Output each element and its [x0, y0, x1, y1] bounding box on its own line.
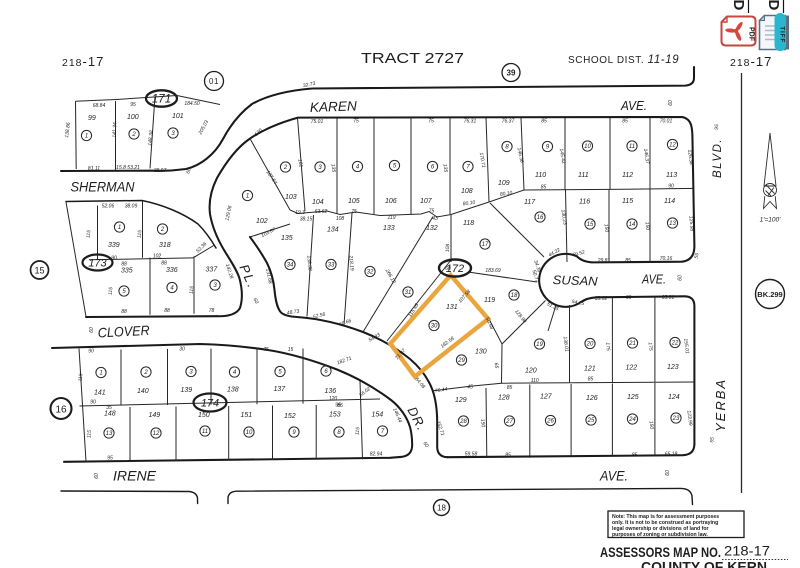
- svg-text:134: 134: [327, 227, 339, 234]
- svg-text:19.3: 19.3: [295, 210, 305, 216]
- svg-text:AVE.: AVE.: [620, 98, 647, 113]
- svg-text:102: 102: [256, 218, 268, 225]
- svg-text:111: 111: [578, 172, 589, 179]
- svg-text:30: 30: [431, 324, 438, 330]
- svg-text:COUNTY OF KERN: COUNTY OF KERN: [641, 559, 767, 568]
- svg-text:108: 108: [336, 216, 345, 222]
- svg-text:107: 107: [420, 198, 433, 205]
- svg-text:1: 1: [85, 134, 88, 140]
- svg-text:TRACT 2727: TRACT 2727: [361, 51, 464, 67]
- svg-text:1: 1: [118, 225, 121, 231]
- svg-text:43: 43: [432, 216, 438, 222]
- svg-text:75: 75: [263, 347, 269, 353]
- svg-text:117: 117: [524, 199, 536, 206]
- svg-text:32: 32: [367, 270, 374, 276]
- svg-text:171: 171: [152, 94, 171, 106]
- svg-text:115: 115: [108, 287, 115, 296]
- svg-text:70.16: 70.16: [660, 256, 673, 262]
- svg-text:30: 30: [179, 347, 185, 353]
- svg-text:123: 123: [667, 364, 679, 371]
- svg-text:115: 115: [622, 198, 633, 205]
- svg-text:2: 2: [143, 370, 148, 376]
- svg-text:68.84: 68.84: [93, 103, 106, 109]
- svg-text:85: 85: [541, 119, 547, 125]
- svg-text:70.01: 70.01: [660, 119, 673, 125]
- svg-text:34: 34: [287, 263, 294, 269]
- svg-text:39: 39: [507, 69, 516, 78]
- svg-text:135: 135: [281, 235, 293, 242]
- svg-text:115: 115: [137, 230, 144, 239]
- svg-text:75: 75: [429, 209, 435, 215]
- svg-text:115: 115: [86, 430, 93, 439]
- svg-text:25: 25: [587, 418, 595, 424]
- svg-text:129: 129: [455, 397, 467, 404]
- svg-text:52.06: 52.06: [102, 204, 115, 210]
- svg-text:114: 114: [664, 198, 675, 205]
- svg-text:151: 151: [241, 412, 253, 419]
- svg-text:100: 100: [127, 114, 139, 121]
- svg-text:115: 115: [355, 427, 362, 436]
- svg-text:20: 20: [586, 342, 594, 348]
- svg-text:SCHOOL DIST. 11-19: SCHOOL DIST. 11-19: [568, 54, 679, 66]
- svg-text:55: 55: [709, 437, 715, 443]
- svg-text:38.97: 38.97: [154, 168, 167, 174]
- svg-text:14: 14: [629, 222, 636, 228]
- svg-text:2: 2: [131, 132, 136, 138]
- svg-text:125: 125: [627, 394, 639, 401]
- svg-text:99: 99: [88, 115, 96, 122]
- svg-text:112: 112: [622, 172, 633, 179]
- svg-text:17: 17: [482, 242, 489, 248]
- svg-text:126: 126: [586, 395, 598, 402]
- svg-text:11: 11: [202, 429, 208, 435]
- svg-text:150: 150: [479, 419, 486, 428]
- svg-text:63.62: 63.62: [315, 209, 328, 215]
- svg-text:60: 60: [445, 266, 451, 272]
- svg-text:173: 173: [88, 258, 107, 270]
- svg-text:KAREN: KAREN: [310, 98, 358, 115]
- svg-text:101: 101: [172, 113, 184, 120]
- svg-text:75: 75: [351, 209, 357, 215]
- svg-text:88: 88: [121, 262, 127, 268]
- svg-text:10: 10: [246, 430, 253, 436]
- svg-text:TIFF: TIFF: [778, 26, 785, 43]
- svg-text:28: 28: [459, 419, 467, 425]
- svg-text:D: D: [765, 0, 782, 11]
- svg-text:85: 85: [625, 258, 631, 264]
- svg-text:23: 23: [672, 416, 680, 422]
- svg-text:103: 103: [285, 194, 297, 201]
- svg-text:60: 60: [665, 470, 671, 476]
- svg-text:75: 75: [353, 119, 359, 125]
- svg-text:2: 2: [283, 165, 288, 171]
- svg-text:127: 127: [540, 394, 553, 401]
- svg-text:109: 109: [498, 180, 510, 187]
- svg-text:133: 133: [383, 225, 395, 232]
- svg-text:119: 119: [484, 297, 495, 304]
- svg-text:85: 85: [507, 385, 513, 391]
- svg-text:AVE.: AVE.: [599, 469, 628, 484]
- svg-text:115: 115: [86, 230, 93, 239]
- svg-text:135: 135: [442, 164, 449, 173]
- svg-text:131: 131: [446, 304, 458, 311]
- svg-text:175: 175: [604, 342, 611, 351]
- svg-text:12: 12: [153, 431, 160, 437]
- svg-text:95: 95: [714, 124, 720, 130]
- svg-text:2: 2: [160, 227, 165, 233]
- svg-text:90: 90: [668, 184, 674, 190]
- svg-text:88: 88: [161, 261, 167, 267]
- svg-text:108: 108: [445, 243, 452, 252]
- svg-text:88: 88: [121, 309, 127, 315]
- svg-text:78: 78: [209, 308, 215, 314]
- svg-text:104: 104: [312, 199, 324, 206]
- svg-text:BK.299: BK.299: [757, 290, 782, 299]
- svg-text:22: 22: [671, 341, 679, 347]
- svg-text:15.8 53.21: 15.8 53.21: [116, 165, 140, 171]
- svg-text:75.01: 75.01: [311, 119, 324, 125]
- svg-text:15: 15: [288, 347, 294, 353]
- svg-text:AVE.: AVE.: [641, 273, 666, 287]
- svg-text:339: 339: [108, 242, 120, 249]
- svg-text:318: 318: [159, 242, 171, 249]
- svg-text:336: 336: [166, 267, 178, 274]
- svg-text:110: 110: [531, 378, 539, 384]
- svg-text:33: 33: [328, 263, 335, 269]
- svg-text:BLVD.: BLVD.: [712, 138, 724, 178]
- svg-text:19: 19: [536, 342, 543, 348]
- svg-text:150: 150: [644, 222, 651, 231]
- svg-text:YERBA: YERBA: [713, 378, 728, 432]
- svg-text:119: 119: [388, 215, 396, 221]
- svg-text:12: 12: [669, 143, 676, 149]
- svg-text:26: 26: [546, 419, 554, 425]
- svg-text:184.50: 184.50: [184, 101, 200, 107]
- svg-text:85: 85: [337, 403, 343, 409]
- svg-text:82.94: 82.94: [370, 452, 383, 458]
- svg-text:106: 106: [385, 198, 397, 205]
- svg-text:10: 10: [584, 144, 591, 150]
- svg-text:138: 138: [227, 387, 239, 394]
- svg-text:153: 153: [329, 412, 341, 419]
- svg-text:65: 65: [493, 363, 499, 369]
- svg-text:141: 141: [94, 390, 106, 397]
- svg-text:65.01: 65.01: [662, 295, 675, 301]
- svg-text:121: 121: [584, 366, 596, 373]
- svg-text:108: 108: [461, 188, 473, 195]
- svg-text:18: 18: [511, 293, 518, 299]
- svg-text:120: 120: [525, 367, 537, 374]
- svg-text:60: 60: [668, 100, 674, 106]
- svg-text:CLOVER: CLOVER: [97, 323, 150, 341]
- svg-text:85: 85: [632, 453, 638, 459]
- svg-text:139: 139: [181, 387, 193, 394]
- svg-text:81.11: 81.11: [88, 166, 100, 172]
- svg-text:130: 130: [475, 349, 487, 356]
- svg-text:105: 105: [348, 198, 360, 205]
- svg-text:140: 140: [137, 388, 149, 395]
- svg-text:150: 150: [603, 224, 610, 233]
- svg-text:115: 115: [189, 286, 196, 295]
- svg-text:65.18: 65.18: [665, 452, 678, 458]
- svg-text:1: 1: [246, 194, 249, 200]
- svg-text:85: 85: [622, 119, 628, 125]
- svg-text:24: 24: [628, 417, 636, 423]
- svg-text:116: 116: [579, 199, 590, 206]
- svg-text:SHERMAN: SHERMAN: [71, 180, 135, 195]
- svg-text:122: 122: [626, 365, 638, 372]
- svg-text:13: 13: [669, 221, 676, 227]
- svg-text:152: 152: [284, 413, 296, 420]
- svg-text:15: 15: [587, 222, 594, 228]
- svg-text:337: 337: [206, 267, 219, 274]
- svg-text:16: 16: [55, 405, 67, 416]
- svg-text:65: 65: [626, 295, 632, 301]
- svg-text:60: 60: [678, 275, 684, 281]
- svg-text:1′=100′: 1′=100′: [760, 217, 781, 224]
- svg-text:PDF: PDF: [748, 27, 755, 42]
- svg-text:102: 102: [153, 254, 162, 260]
- svg-text:31: 31: [405, 290, 412, 296]
- svg-text:174: 174: [201, 398, 219, 410]
- svg-text:218-17: 218-17: [62, 54, 104, 69]
- svg-text:148: 148: [104, 411, 116, 418]
- svg-text:60: 60: [94, 473, 100, 479]
- svg-text:90: 90: [90, 400, 96, 406]
- svg-text:128: 128: [498, 395, 510, 402]
- svg-text:85: 85: [588, 377, 594, 383]
- svg-text:149: 149: [149, 412, 161, 419]
- svg-text:218-17: 218-17: [730, 54, 772, 69]
- svg-text:183.69: 183.69: [485, 268, 501, 274]
- svg-text:141.34: 141.34: [112, 122, 119, 138]
- svg-text:60: 60: [89, 327, 95, 333]
- svg-text:118: 118: [463, 220, 474, 227]
- svg-text:110: 110: [535, 172, 546, 179]
- svg-text:11: 11: [629, 144, 635, 150]
- svg-text:29: 29: [457, 358, 465, 364]
- svg-text:38.09: 38.09: [125, 204, 138, 210]
- svg-text:85: 85: [505, 453, 511, 459]
- svg-text:132: 132: [426, 225, 438, 232]
- svg-text:SUSAN: SUSAN: [552, 273, 598, 289]
- svg-text:13: 13: [106, 431, 113, 437]
- svg-text:85: 85: [541, 185, 547, 191]
- svg-text:76.37: 76.37: [502, 119, 515, 125]
- svg-text:150: 150: [198, 412, 210, 419]
- svg-text:120: 120: [329, 396, 338, 402]
- svg-text:45: 45: [467, 385, 473, 391]
- svg-text:75: 75: [428, 119, 434, 125]
- svg-text:335: 335: [121, 268, 133, 275]
- svg-text:90: 90: [111, 256, 117, 262]
- svg-text:150: 150: [648, 421, 655, 430]
- svg-text:35: 35: [106, 405, 112, 411]
- svg-text:136: 136: [325, 388, 337, 395]
- svg-text:27: 27: [505, 419, 513, 425]
- svg-text:137: 137: [274, 386, 287, 393]
- svg-text:38.15: 38.15: [300, 217, 313, 223]
- svg-text:16: 16: [537, 215, 544, 221]
- svg-text:1: 1: [99, 371, 102, 377]
- svg-text:113: 113: [666, 172, 677, 179]
- svg-text:115: 115: [78, 373, 85, 382]
- svg-text:218-17: 218-17: [724, 543, 770, 559]
- svg-text:15: 15: [34, 266, 44, 276]
- svg-text:124: 124: [668, 394, 680, 401]
- svg-text:95: 95: [130, 102, 136, 108]
- svg-text:154: 154: [372, 412, 384, 419]
- svg-text:29.81: 29.81: [597, 258, 611, 264]
- svg-text:59.58: 59.58: [465, 452, 478, 458]
- svg-text:88: 88: [164, 308, 170, 314]
- svg-text:D: D: [730, 0, 747, 11]
- svg-text:90: 90: [88, 349, 94, 355]
- svg-text:95: 95: [107, 456, 113, 462]
- svg-text:purposes of zoning or subdivis: purposes of zoning or subdivision law.: [612, 532, 708, 538]
- svg-text:IRENE: IRENE: [113, 469, 157, 484]
- svg-text:21: 21: [628, 341, 636, 347]
- svg-text:01: 01: [209, 77, 219, 86]
- svg-text:18: 18: [437, 504, 446, 513]
- svg-text:135: 135: [330, 164, 337, 173]
- svg-text:175: 175: [647, 342, 654, 351]
- svg-text:76.31: 76.31: [464, 119, 477, 125]
- svg-text:35.02: 35.02: [595, 296, 608, 302]
